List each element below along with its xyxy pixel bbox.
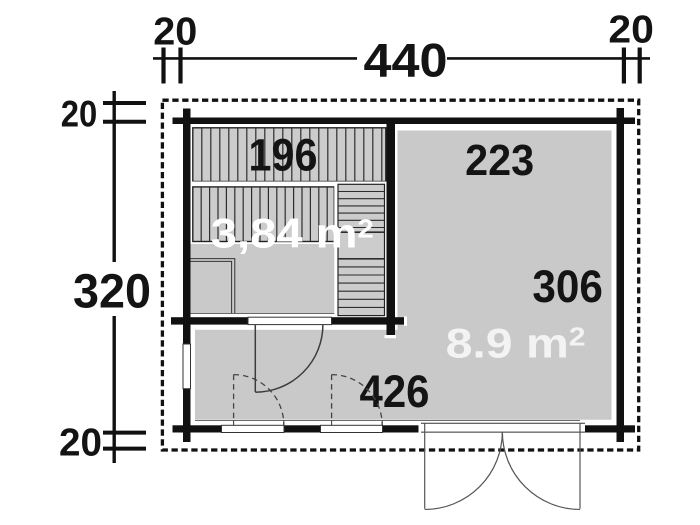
svg-text:3,84 m2: 3,84 m2 bbox=[211, 210, 374, 257]
svg-text:8.9 m2: 8.9 m2 bbox=[446, 319, 586, 366]
svg-text:20: 20 bbox=[59, 421, 102, 464]
svg-text:20: 20 bbox=[61, 92, 98, 134]
svg-text:320: 320 bbox=[73, 266, 151, 319]
svg-text:20: 20 bbox=[608, 8, 654, 51]
svg-text:306: 306 bbox=[532, 261, 603, 312]
svg-text:20: 20 bbox=[153, 11, 197, 54]
svg-text:223: 223 bbox=[465, 136, 534, 185]
svg-text:196: 196 bbox=[249, 130, 318, 181]
svg-text:440: 440 bbox=[364, 34, 448, 87]
